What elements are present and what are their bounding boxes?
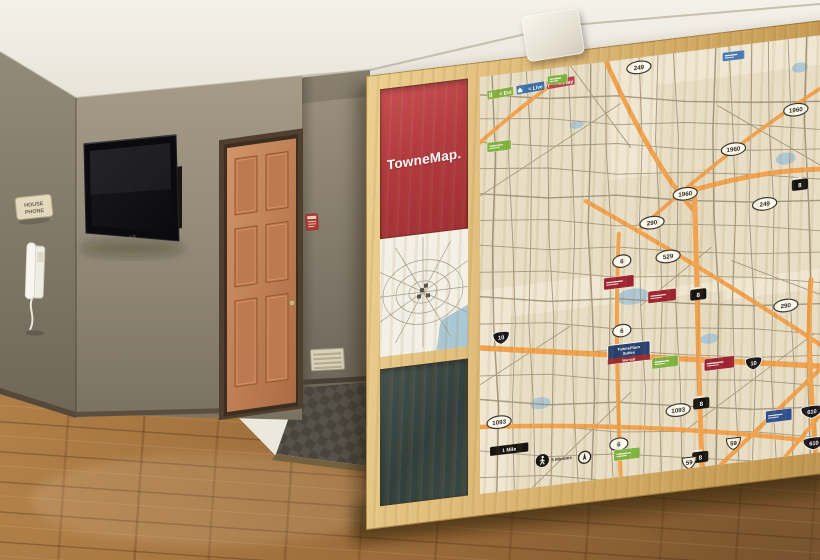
red-wall-sign bbox=[306, 214, 319, 231]
phone-handset bbox=[25, 243, 36, 299]
townemap-title: TowneMap. bbox=[387, 146, 462, 173]
svg-text:249: 249 bbox=[759, 200, 770, 208]
ceiling-speaker bbox=[521, 8, 585, 63]
svg-text:6: 6 bbox=[617, 441, 621, 448]
svg-text:8: 8 bbox=[697, 292, 701, 299]
lobby-photo: HOUSE PHONE LG bbox=[0, 0, 820, 560]
map-wall: TowneMap. = Eat= Live= Play2491960196019… bbox=[366, 17, 820, 530]
inset-map-svg bbox=[380, 228, 468, 357]
svg-text:59: 59 bbox=[686, 460, 693, 467]
svg-text:6: 6 bbox=[620, 258, 624, 265]
svg-text:8: 8 bbox=[699, 454, 703, 461]
door-panel bbox=[266, 152, 288, 211]
svg-text:8: 8 bbox=[798, 182, 802, 189]
svg-text:290: 290 bbox=[781, 302, 792, 310]
chalkboard bbox=[380, 358, 468, 506]
svg-text:529: 529 bbox=[663, 253, 674, 261]
door-panel bbox=[266, 222, 288, 283]
svg-text:8: 8 bbox=[700, 401, 704, 408]
svg-text:10: 10 bbox=[750, 361, 756, 368]
svg-text:59: 59 bbox=[730, 441, 737, 448]
inset-city-map bbox=[380, 228, 468, 357]
left-wall bbox=[0, 52, 76, 418]
door-panel bbox=[235, 298, 257, 387]
door-panel bbox=[235, 156, 257, 215]
tv-brand-logo: LG bbox=[129, 235, 136, 242]
house-phone-sign: HOUSE PHONE bbox=[15, 194, 54, 226]
svg-text:290: 290 bbox=[647, 219, 658, 227]
air-vent bbox=[310, 348, 344, 371]
door-panel bbox=[235, 226, 257, 287]
townemap-sign: TowneMap. bbox=[380, 78, 468, 239]
svg-text:610: 610 bbox=[809, 441, 818, 448]
interior-door bbox=[219, 128, 303, 420]
svg-text:610: 610 bbox=[807, 409, 816, 416]
door-panel bbox=[266, 294, 288, 383]
svg-text:10: 10 bbox=[498, 335, 504, 342]
townemap-svg: = Eat= Live= Play24919601960196082492905… bbox=[480, 35, 820, 494]
townemap-panel: = Eat= Live= Play24919601960196082492905… bbox=[480, 35, 820, 494]
svg-text:249: 249 bbox=[634, 64, 645, 72]
svg-text:6: 6 bbox=[620, 328, 624, 335]
